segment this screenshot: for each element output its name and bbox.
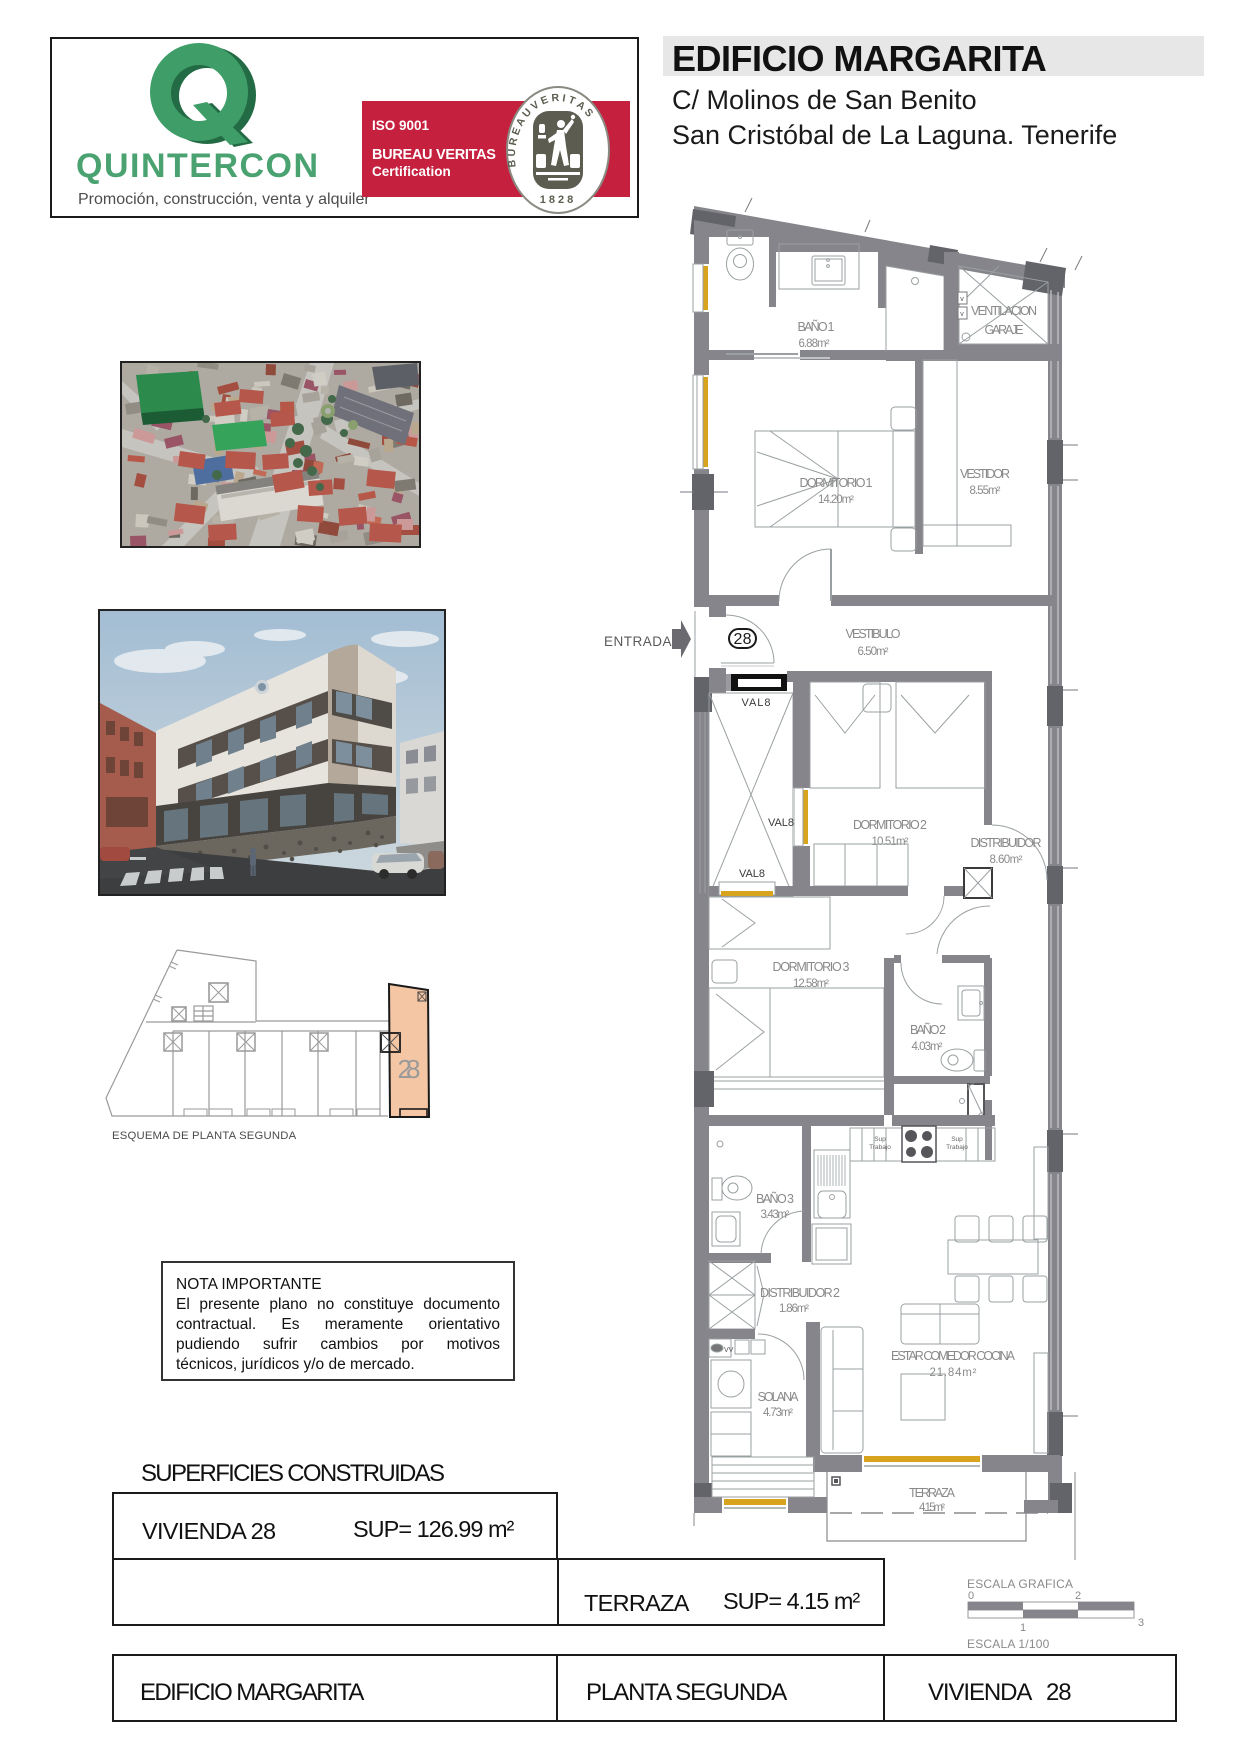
- svg-text:VESTIDOR: VESTIDOR: [960, 467, 1010, 481]
- svg-text:DISTRIBUIDOR: DISTRIBUIDOR: [971, 836, 1042, 850]
- svg-text:1.86m²: 1.86m²: [779, 1303, 809, 1315]
- svg-text:VESTIBULO: VESTIBULO: [846, 627, 901, 641]
- svg-text:1828: 1828: [540, 194, 576, 206]
- svg-text:ESQUEMA DE PLANTA SEGUNDA: ESQUEMA DE PLANTA SEGUNDA: [112, 1130, 297, 1142]
- svg-text:1: 1: [1020, 1622, 1026, 1634]
- svg-text:VENTILACION: VENTILACION: [971, 304, 1037, 318]
- svg-text:8.60m²: 8.60m²: [990, 854, 1023, 866]
- svg-text:3: 3: [1138, 1617, 1144, 1629]
- svg-text:0: 0: [968, 1590, 974, 1602]
- svg-text:21.84m²: 21.84m²: [930, 1367, 977, 1379]
- svg-text:ESCALA GRAFICA: ESCALA GRAFICA: [967, 1577, 1073, 1591]
- svg-text:TERRAZA: TERRAZA: [909, 1486, 956, 1500]
- svg-text:BUREAU VERITAS: BUREAU VERITAS: [372, 147, 496, 163]
- svg-text:v: v: [960, 311, 964, 318]
- svg-text:v: v: [960, 296, 964, 303]
- svg-text:3.43m²: 3.43m²: [761, 1209, 790, 1221]
- svg-text:4.73m²: 4.73m²: [763, 1407, 793, 1419]
- svg-text:BAÑO 1: BAÑO 1: [798, 320, 835, 334]
- svg-text:4.15m²: 4.15m²: [919, 1502, 945, 1514]
- svg-text:2: 2: [1075, 1590, 1081, 1602]
- svg-text:GARAJE: GARAJE: [985, 323, 1024, 337]
- svg-text:DORMITORIO 1: DORMITORIO 1: [800, 476, 873, 490]
- svg-text:Trabajo: Trabajo: [869, 1144, 891, 1151]
- svg-text:14.20m²: 14.20m²: [818, 494, 854, 506]
- svg-text:12.58m²: 12.58m²: [793, 978, 829, 990]
- svg-text:DORMITORIO 2: DORMITORIO 2: [853, 818, 927, 832]
- svg-text:28: 28: [398, 1054, 421, 1084]
- svg-text:ISO 9001: ISO 9001: [372, 118, 430, 133]
- svg-text:28: 28: [734, 631, 752, 648]
- svg-text:6.50m²: 6.50m²: [858, 646, 889, 658]
- svg-text:4.03m²: 4.03m²: [912, 1041, 943, 1053]
- svg-text:ENTRADA: ENTRADA: [604, 634, 672, 649]
- svg-text:QUINTERCON: QUINTERCON: [76, 147, 320, 185]
- svg-text:6.88m²: 6.88m²: [799, 338, 830, 350]
- svg-text:Sup: Sup: [874, 1136, 886, 1143]
- svg-text:VAL8: VAL8: [742, 697, 771, 709]
- svg-text:VV: VV: [724, 1347, 734, 1354]
- svg-text:Sup: Sup: [951, 1136, 963, 1143]
- svg-text:VAL8: VAL8: [739, 868, 765, 880]
- svg-text:Promoción, construcción, venta: Promoción, construcción, venta y alquile…: [78, 191, 370, 208]
- svg-text:ESTAR COMEDOR COCINA: ESTAR COMEDOR COCINA: [891, 1349, 1016, 1363]
- svg-text:VAL8: VAL8: [768, 817, 794, 829]
- svg-text:DISTRIBUIDOR 2: DISTRIBUIDOR 2: [760, 1286, 840, 1300]
- svg-text:ESCALA 1/100: ESCALA 1/100: [967, 1637, 1050, 1651]
- svg-text:8.55m²: 8.55m²: [970, 485, 1001, 497]
- svg-text:SOLANA: SOLANA: [758, 1390, 800, 1404]
- svg-text:Trabajo: Trabajo: [946, 1144, 968, 1151]
- svg-text:BAÑO 3: BAÑO 3: [756, 1192, 794, 1206]
- svg-text:BAÑO 2: BAÑO 2: [910, 1023, 946, 1037]
- svg-text:Certification: Certification: [372, 164, 451, 179]
- svg-text:DORMITORIO 3: DORMITORIO 3: [773, 960, 850, 974]
